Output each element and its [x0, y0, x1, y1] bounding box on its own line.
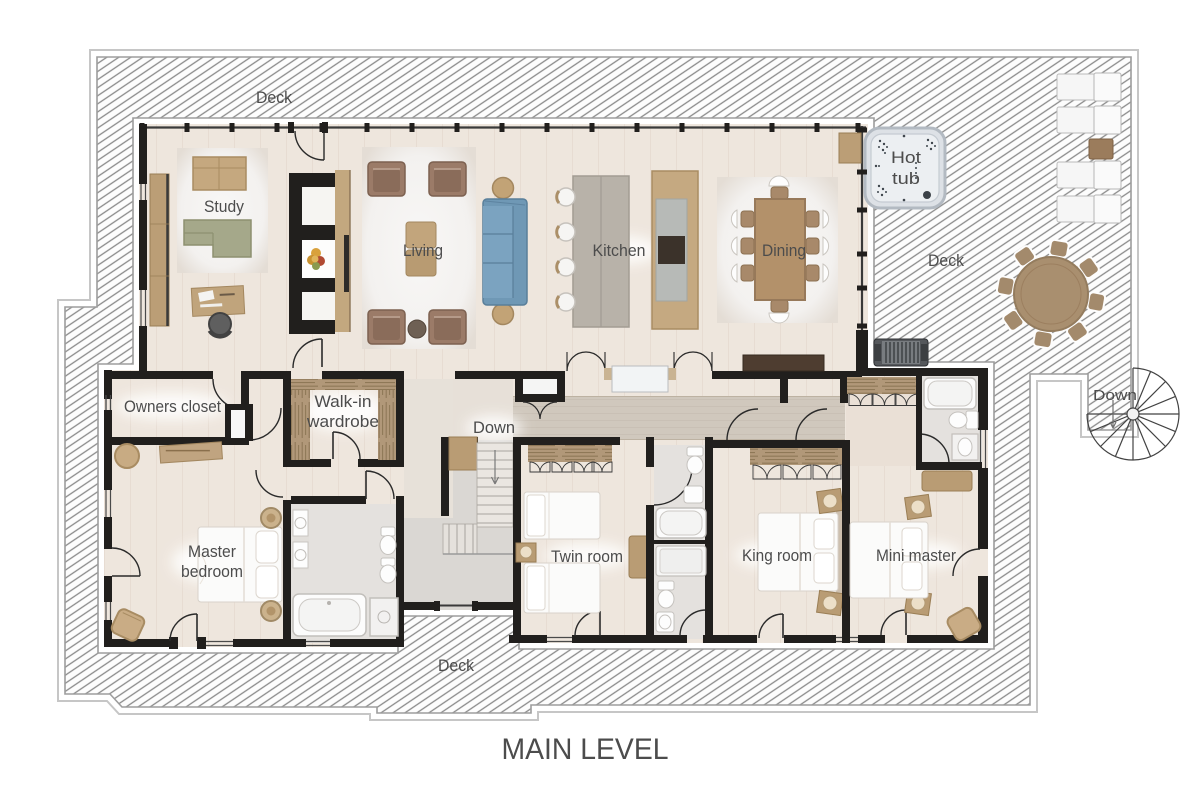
svg-text:tub: tub [892, 170, 920, 188]
svg-text:wardrobe: wardrobe [306, 413, 379, 431]
svg-text:King room: King room [742, 547, 812, 565]
svg-text:Deck: Deck [928, 251, 964, 270]
svg-text:Master: Master [188, 543, 236, 561]
svg-text:Dining: Dining [762, 242, 806, 260]
svg-text:Down: Down [473, 419, 515, 437]
svg-text:Study: Study [204, 198, 245, 216]
svg-text:Living: Living [403, 242, 443, 260]
svg-text:Mini master: Mini master [876, 547, 956, 565]
svg-text:bedroom: bedroom [181, 563, 243, 581]
svg-text:Down: Down [1093, 387, 1137, 404]
svg-text:Kitchen: Kitchen [593, 242, 646, 260]
svg-text:Hot: Hot [891, 149, 921, 167]
svg-text:Twin room: Twin room [551, 548, 623, 566]
svg-text:Deck: Deck [256, 88, 292, 107]
svg-text:Owners closet: Owners closet [124, 398, 221, 416]
svg-text:Walk-in: Walk-in [315, 393, 372, 411]
svg-text:Deck: Deck [438, 656, 474, 675]
svg-text:MAIN LEVEL: MAIN LEVEL [502, 733, 669, 766]
